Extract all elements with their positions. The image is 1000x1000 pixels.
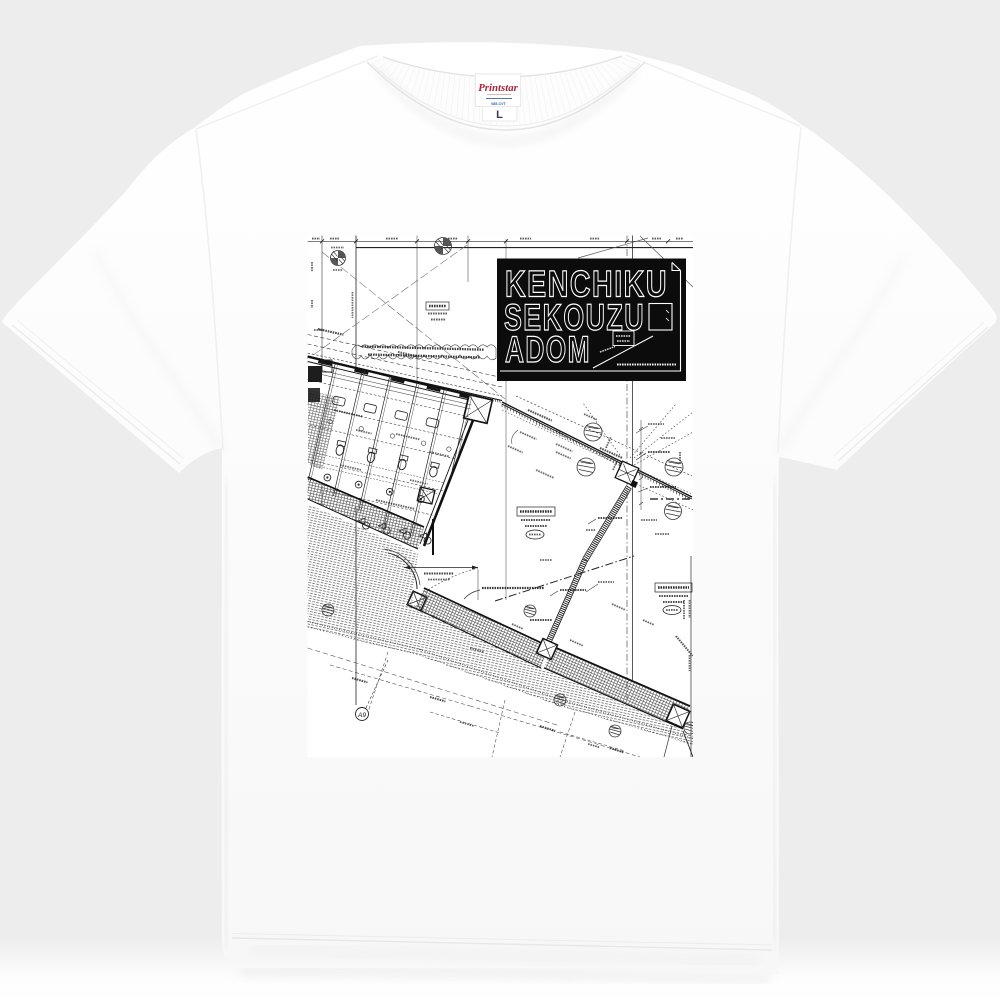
svg-text:L: L (496, 109, 503, 121)
svg-text:Printstar: Printstar (478, 82, 518, 94)
svg-text:A9: A9 (357, 712, 366, 719)
svg-text:085-CVT: 085-CVT (491, 102, 506, 106)
svg-text:ADOM: ADOM (505, 329, 591, 370)
